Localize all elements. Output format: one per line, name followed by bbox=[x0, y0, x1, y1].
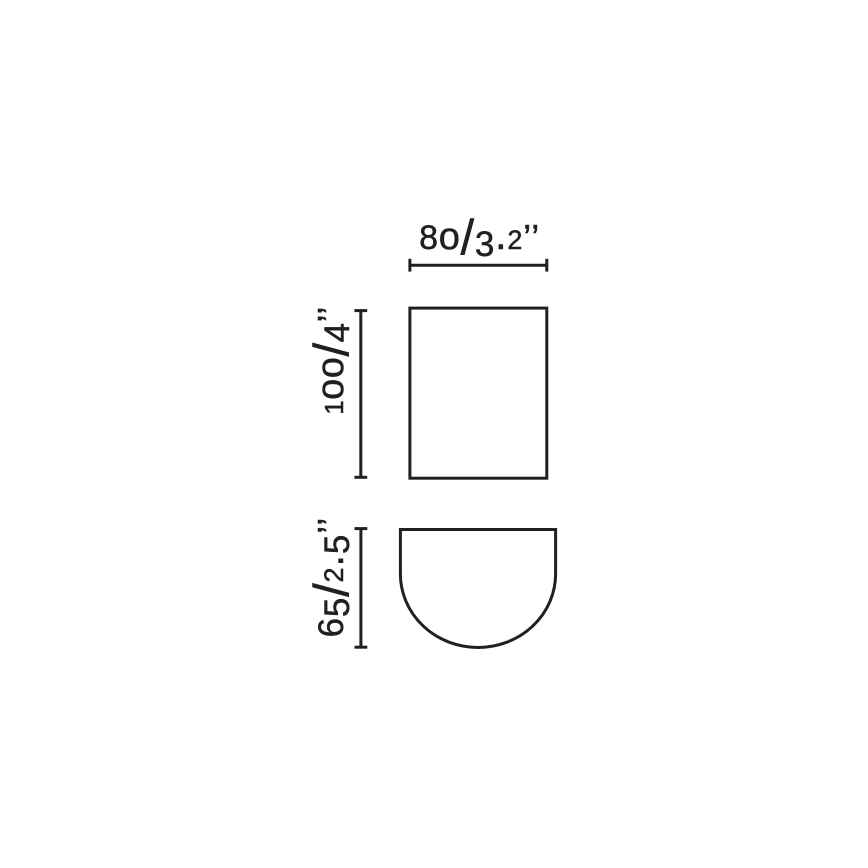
svg-text:1oo/4’’: 1oo/4’’ bbox=[305, 306, 359, 415]
